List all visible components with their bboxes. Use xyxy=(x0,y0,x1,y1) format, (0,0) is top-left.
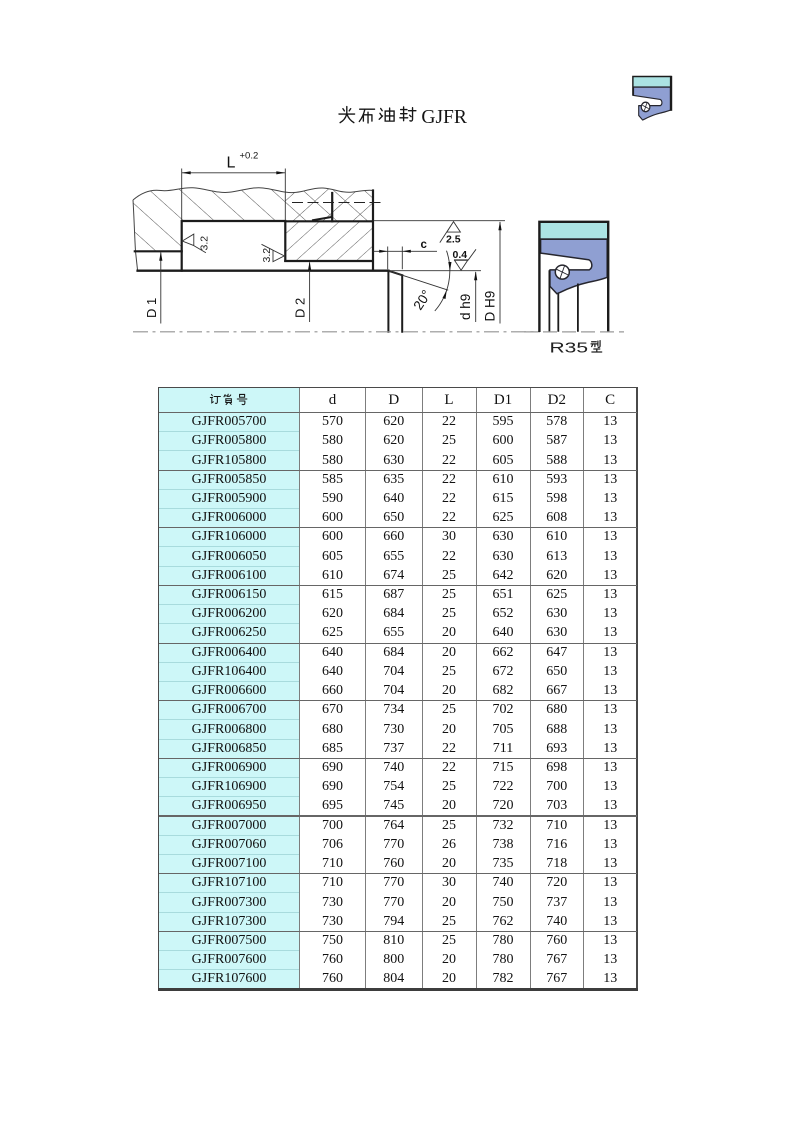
svg-text:D 2: D 2 xyxy=(293,298,308,318)
svg-text:D H9: D H9 xyxy=(483,291,498,322)
svg-text:3.2: 3.2 xyxy=(198,236,210,251)
svg-text:20°: 20° xyxy=(410,287,434,312)
svg-text:d h9: d h9 xyxy=(458,294,473,320)
svg-text:L: L xyxy=(227,155,236,172)
svg-text:+0.2: +0.2 xyxy=(240,151,259,162)
svg-text:3.2: 3.2 xyxy=(261,248,273,263)
svg-text:D 1: D 1 xyxy=(144,298,159,318)
svg-text:c: c xyxy=(421,239,428,251)
svg-text:R35: R35 xyxy=(550,339,589,356)
svg-text:2.5: 2.5 xyxy=(446,234,461,246)
